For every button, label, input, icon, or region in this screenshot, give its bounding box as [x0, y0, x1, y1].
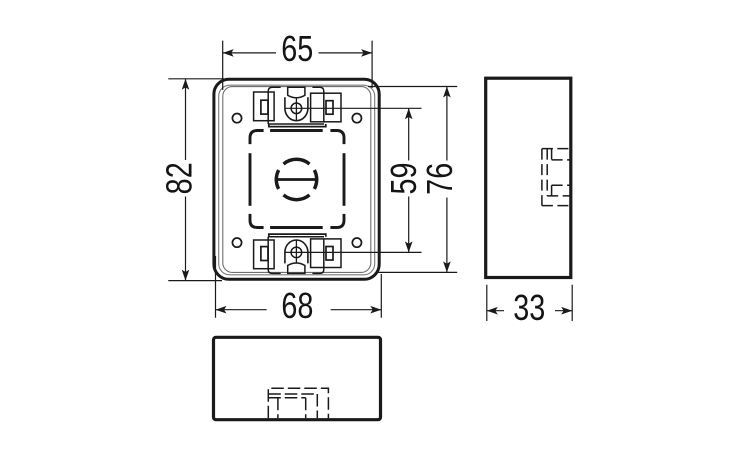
- svg-text:33: 33: [513, 287, 545, 328]
- svg-text:65: 65: [281, 28, 313, 69]
- svg-text:68: 68: [281, 285, 313, 326]
- svg-text:59: 59: [383, 162, 424, 194]
- svg-text:76: 76: [419, 163, 460, 195]
- svg-text:82: 82: [159, 162, 200, 194]
